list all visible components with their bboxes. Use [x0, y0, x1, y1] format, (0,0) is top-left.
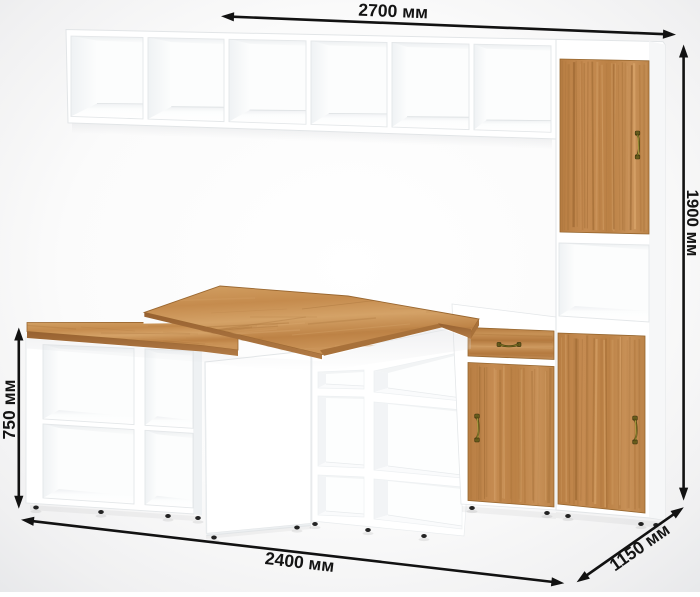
svg-text:1900 мм: 1900 мм — [683, 190, 700, 257]
svg-text:750 мм: 750 мм — [0, 380, 19, 440]
svg-text:2700 мм: 2700 мм — [358, 0, 428, 22]
